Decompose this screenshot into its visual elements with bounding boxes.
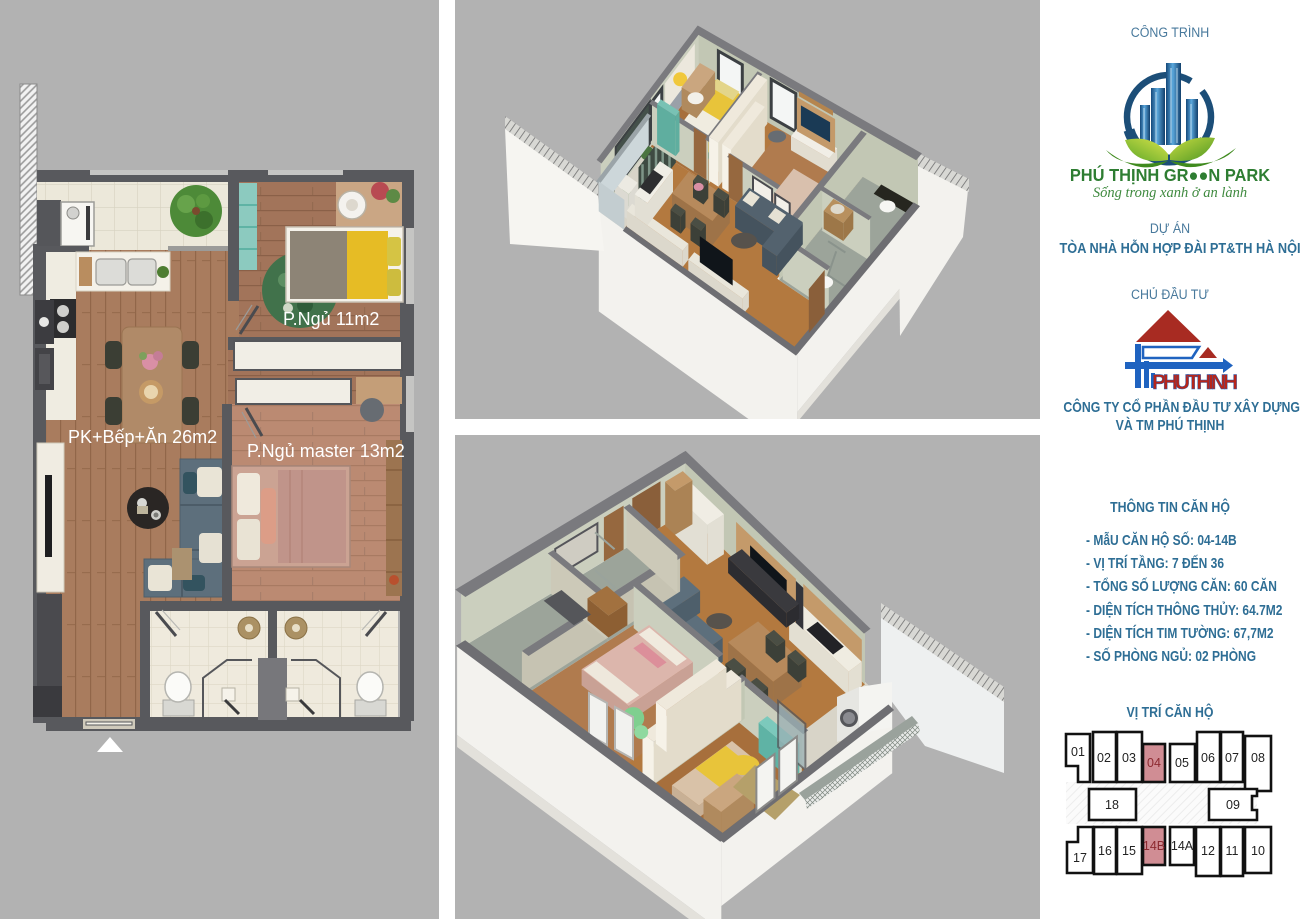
svg-text:P.Ngủ 11m2: P.Ngủ 11m2 bbox=[283, 309, 379, 329]
svg-text:02: 02 bbox=[1097, 751, 1111, 765]
svg-text:P.Ngủ master 13m2: P.Ngủ master 13m2 bbox=[247, 441, 405, 461]
svg-text:03: 03 bbox=[1122, 751, 1136, 765]
svg-text:14B: 14B bbox=[1143, 839, 1165, 853]
svg-text:04: 04 bbox=[1147, 756, 1161, 770]
svg-text:11: 11 bbox=[1226, 844, 1239, 858]
svg-text:PK+Bếp+Ăn 26m2: PK+Bếp+Ăn 26m2 bbox=[68, 427, 217, 447]
svg-text:05: 05 bbox=[1175, 756, 1189, 770]
svg-text:17: 17 bbox=[1073, 851, 1087, 865]
svg-text:06: 06 bbox=[1201, 751, 1215, 765]
svg-text:10: 10 bbox=[1251, 844, 1265, 858]
svg-text:08: 08 bbox=[1251, 751, 1265, 765]
svg-text:09: 09 bbox=[1226, 798, 1240, 812]
svg-text:12: 12 bbox=[1201, 844, 1215, 858]
svg-text:Sống trong xanh ở an lành: Sống trong xanh ở an lành bbox=[1093, 185, 1247, 201]
svg-text:18: 18 bbox=[1105, 798, 1119, 812]
svg-text:PHUTHINH: PHUTHINH bbox=[1152, 371, 1238, 394]
svg-text:14A: 14A bbox=[1171, 839, 1194, 853]
svg-text:PHÚ THỊNH GR●●N PARK: PHÚ THỊNH GR●●N PARK bbox=[1070, 166, 1271, 186]
svg-text:07: 07 bbox=[1225, 751, 1239, 765]
svg-text:15: 15 bbox=[1122, 844, 1136, 858]
svg-text:16: 16 bbox=[1098, 844, 1112, 858]
svg-text:01: 01 bbox=[1071, 745, 1085, 759]
